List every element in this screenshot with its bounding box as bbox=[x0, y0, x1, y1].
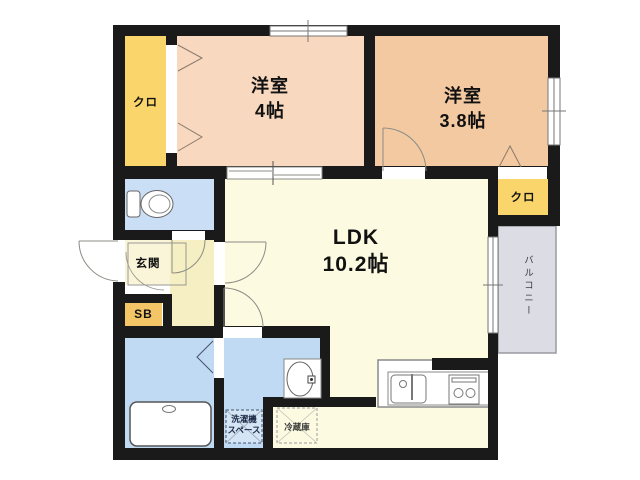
bathtub-icon bbox=[130, 402, 211, 446]
entrance-label: 玄関 bbox=[124, 255, 172, 271]
washing-machine-line1: 洗濯機 bbox=[222, 414, 266, 425]
ldk-name: LDK bbox=[281, 224, 431, 251]
closet-left-label: クロ bbox=[125, 94, 166, 110]
washbasin-icon bbox=[284, 359, 321, 398]
ldk-label: LDK 10.2帖 bbox=[281, 224, 431, 278]
floor-plan: 洋室 4帖 洋室 3.8帖 LDK 10.2帖 クロ クロ 玄関 SB 洗濯機 … bbox=[0, 0, 640, 480]
washing-machine-space-label: 洗濯機 スペース bbox=[222, 414, 266, 435]
bedroom2-name: 洋室 bbox=[388, 84, 538, 109]
bedroom1-name: 洋室 bbox=[195, 74, 345, 99]
bedroom2-size: 3.8帖 bbox=[388, 109, 538, 134]
shoebox-label: SB bbox=[125, 307, 162, 321]
hall-floor bbox=[170, 240, 214, 326]
bedroom1-label: 洋室 4帖 bbox=[195, 74, 345, 124]
washing-machine-line2: スペース bbox=[222, 425, 266, 436]
toilet-icon bbox=[127, 191, 173, 218]
refrigerator-label: 冷蔵庫 bbox=[275, 421, 319, 433]
bedroom2-label: 洋室 3.8帖 bbox=[388, 84, 538, 134]
balcony-label: バルコニー bbox=[520, 255, 534, 345]
bedroom1-size: 4帖 bbox=[195, 99, 345, 124]
closet-right-label: クロ bbox=[498, 189, 548, 205]
ldk-size: 10.2帖 bbox=[281, 251, 431, 278]
